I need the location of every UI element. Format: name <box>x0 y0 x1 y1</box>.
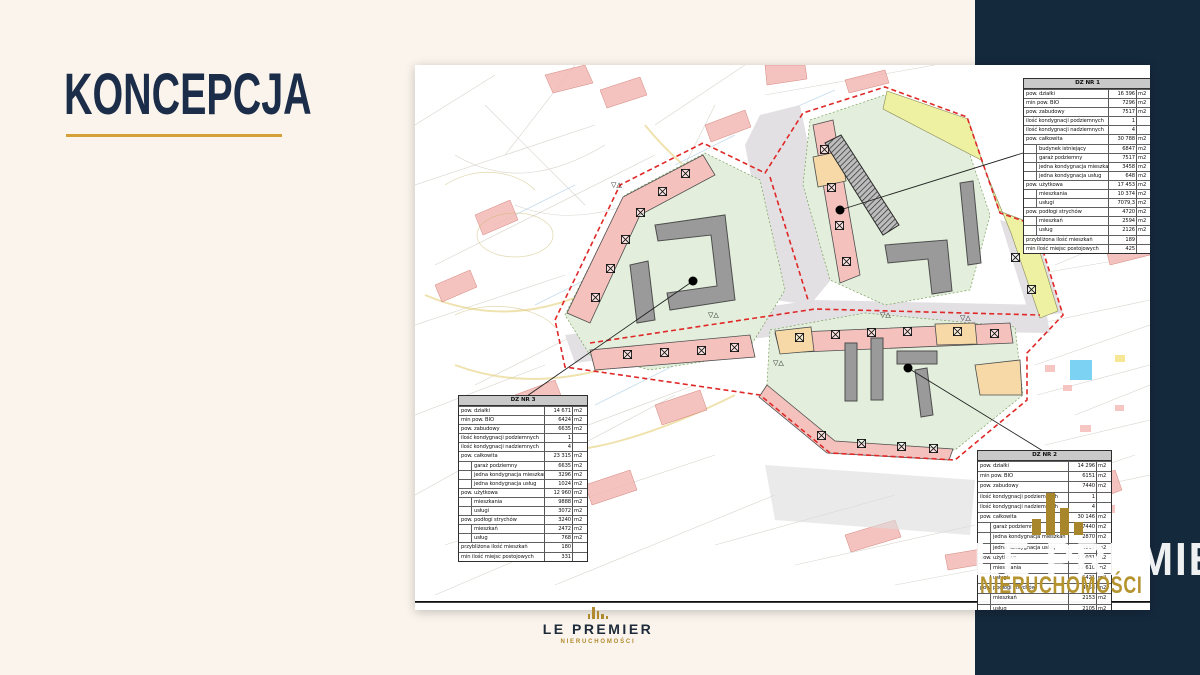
row-value: 6635 <box>544 462 572 470</box>
row-value: 1 <box>1068 493 1096 502</box>
table-row: jedna kondygnacja usług1024m2 <box>459 479 587 488</box>
row-label: usługi <box>991 574 1068 583</box>
water-feature <box>1070 360 1092 380</box>
row-unit: m2 <box>572 525 587 533</box>
table-row: pow. podłogi strychów3240m2 <box>459 515 587 524</box>
row-label: przybliżona ilość mieszkań <box>1024 236 1108 244</box>
svg-text:▽△: ▽△ <box>960 314 971 322</box>
row-unit: m2 <box>572 498 587 506</box>
row-unit: m2 <box>1136 226 1150 234</box>
svg-text:▽△: ▽△ <box>773 359 784 367</box>
row-value: 9888 <box>544 498 572 506</box>
table-row: budynek istniejący6847m2 <box>1024 144 1150 153</box>
row-indent <box>459 498 472 506</box>
table-row: przybliżona ilość mieszkań180 <box>459 542 587 551</box>
table-row: pow. całkowita23 315m2 <box>459 451 587 460</box>
row-unit: m2 <box>1136 208 1150 216</box>
row-unit: m2 <box>1096 462 1111 471</box>
row-value: 12 960 <box>544 489 572 497</box>
table-row: min ilość miejsc postojowych425 <box>1024 244 1150 253</box>
row-value: 7296 <box>1108 99 1136 107</box>
table-dz-nr-3: DZ NR 3pow. działki14 671m2min pow. BIO6… <box>458 395 588 562</box>
row-indent <box>1024 199 1037 207</box>
row-unit: m2 <box>1136 90 1150 98</box>
row-indent <box>1024 217 1037 225</box>
row-indent <box>1024 172 1037 180</box>
row-value: 7517 <box>1108 154 1136 162</box>
row-unit <box>572 553 587 561</box>
row-label: pow. zabudowy <box>978 482 1068 491</box>
row-label: usługi <box>1037 199 1108 207</box>
row-unit: m2 <box>1136 199 1150 207</box>
row-unit: m2 <box>572 480 587 488</box>
row-label: pow. działki <box>978 462 1068 471</box>
row-indent <box>1024 226 1037 234</box>
row-label: pow. podłogi strychów <box>459 516 544 524</box>
table-row: jedna kondygnacja usług2807m2 <box>978 543 1111 553</box>
table-row: ilość kondygnacji podziemnych1 <box>459 433 587 442</box>
row-unit: m2 <box>1136 145 1150 153</box>
row-value: 14 296 <box>1068 462 1096 471</box>
bar-columns-icon <box>498 606 698 619</box>
table-row: ilość kondygnacji nadziemnych4 <box>1024 125 1150 134</box>
row-indent <box>1024 163 1037 171</box>
table-row: pow. całkowita30 788m2 <box>1024 134 1150 143</box>
row-unit: m2 <box>1096 523 1111 532</box>
row-value: 331 <box>544 553 572 561</box>
table-row: usługi3072m2 <box>459 506 587 515</box>
row-label: mieszkania <box>472 498 544 506</box>
row-label: pow. działki <box>1024 90 1108 98</box>
table-row: jedna kondygnacja mieszkań3296m2 <box>459 470 587 479</box>
row-indent <box>459 480 472 488</box>
row-unit: m2 <box>1136 217 1150 225</box>
row-label: przybliżona ilość mieszkań <box>459 543 544 551</box>
row-indent <box>1024 190 1037 198</box>
row-value: 4 <box>1068 503 1096 512</box>
table-title: DZ NR 3 <box>459 396 587 406</box>
row-unit <box>572 543 587 551</box>
table-row: jedna kondygnacja mieszkań3458m2 <box>1024 162 1150 171</box>
row-label: pow. całkowita <box>978 513 1068 522</box>
logo-name: LE PREMIER <box>498 621 698 637</box>
row-value: 6847 <box>1108 145 1136 153</box>
row-unit: m2 <box>1096 605 1111 610</box>
row-unit: m2 <box>1096 533 1111 542</box>
row-value: 7517 <box>1108 108 1136 116</box>
row-label: jedna kondygnacja mieszkań <box>991 533 1068 542</box>
row-value: 17 453 <box>1108 181 1136 189</box>
row-label: min ilość miejsc postojowych <box>459 553 544 561</box>
row-value: 16 396 <box>1108 90 1136 98</box>
row-value: 2105 <box>1068 605 1096 610</box>
row-unit: m2 <box>572 425 587 433</box>
row-label: mieszkań <box>472 525 544 533</box>
row-value: 4 <box>1108 126 1136 134</box>
row-label: budynek istniejący <box>1037 145 1108 153</box>
table-row: min pow. BIO6151m2 <box>978 471 1111 481</box>
row-label: usług <box>472 534 544 542</box>
table-row: pow. działki14 671m2 <box>459 406 587 415</box>
row-label: jedna kondygnacja usług <box>991 544 1068 553</box>
row-unit: m2 <box>1136 181 1150 189</box>
row-label: pow. użytkowa <box>1024 181 1108 189</box>
row-value: 648 <box>1108 172 1136 180</box>
table-row: jedna kondygnacja usług648m2 <box>1024 171 1150 180</box>
table-row: min pow. BIO6424m2 <box>459 415 587 424</box>
row-label: pow. użytkowa <box>459 489 544 497</box>
table-row: mieszkań2472m2 <box>459 524 587 533</box>
row-label: jedna kondygnacja mieszkań <box>472 471 544 479</box>
row-unit: m2 <box>572 489 587 497</box>
row-value: 180 <box>544 543 572 551</box>
table-row: mieszkań2594m2 <box>1024 216 1150 225</box>
row-label: pow. użytkowa <box>978 554 1068 563</box>
row-value: 11 610 <box>1068 564 1096 573</box>
row-indent <box>978 544 991 553</box>
row-value: 2472 <box>544 525 572 533</box>
row-value: 7079,3 <box>1108 199 1136 207</box>
row-value: 7440 <box>1068 482 1096 491</box>
row-unit: m2 <box>572 462 587 470</box>
row-value: 1024 <box>544 480 572 488</box>
table-row: jedna kondygnacja mieszkań2870m2 <box>978 532 1111 542</box>
row-unit <box>572 434 587 442</box>
row-label: pow. podłogi strychów <box>978 584 1068 593</box>
row-unit: m2 <box>1096 472 1111 481</box>
table-row: usługi7079,3m2 <box>1024 198 1150 207</box>
row-label: garaż podziemny <box>472 462 544 470</box>
table-row: mieszkania11 610m2 <box>978 563 1111 573</box>
table-row: pow. zabudowy7517m2 <box>1024 107 1150 116</box>
table-row: pow. działki14 296m2 <box>978 461 1111 471</box>
row-unit: m2 <box>572 471 587 479</box>
parcel-dot-dz2 <box>904 364 913 373</box>
row-unit: m2 <box>1136 108 1150 116</box>
row-unit: m2 <box>1136 172 1150 180</box>
row-label: jedna kondygnacja usług <box>472 480 544 488</box>
row-value: 2153 <box>1068 594 1096 603</box>
row-unit: m2 <box>1136 135 1150 143</box>
row-value: 4 <box>544 443 572 451</box>
row-value: 768 <box>544 534 572 542</box>
row-value: 14 671 <box>544 407 572 415</box>
row-label: ilość kondygnacji podziemnych <box>1024 117 1108 125</box>
row-indent <box>459 525 472 533</box>
row-indent <box>978 574 991 583</box>
row-unit: m2 <box>1096 564 1111 573</box>
row-label: jedna kondygnacja usług <box>1037 172 1108 180</box>
row-indent <box>459 471 472 479</box>
table-dz-nr-2: DZ NR 2pow. działki14 296m2min pow. BIO6… <box>977 450 1112 610</box>
row-value: 2807 <box>1068 544 1096 553</box>
table-row: usług2105m2 <box>978 604 1111 610</box>
row-unit: m2 <box>1096 544 1111 553</box>
row-value: 425 <box>1108 245 1136 253</box>
table-row: min ilość miejsc postojowych331 <box>459 552 587 561</box>
row-unit: m2 <box>1136 190 1150 198</box>
row-label: pow. zabudowy <box>1024 108 1108 116</box>
row-value: 2870 <box>1068 533 1096 542</box>
row-label: garaż podziemny <box>1037 154 1108 162</box>
row-label: min pow. BIO <box>459 416 544 424</box>
row-label: ilość kondygnacji podziemnych <box>978 493 1068 502</box>
table-row: ilość kondygnacji podziemnych1 <box>1024 116 1150 125</box>
row-label: jedna kondygnacja mieszkań <box>1037 163 1108 171</box>
row-unit: m2 <box>1096 513 1111 522</box>
row-unit: m2 <box>1096 594 1111 603</box>
row-label: min ilość miejsc postojowych <box>1024 245 1108 253</box>
row-label: ilość kondygnacji nadziemnych <box>978 503 1068 512</box>
row-value: 1 <box>544 434 572 442</box>
row-label: pow. całkowita <box>459 452 544 460</box>
row-value: 30 146 <box>1068 513 1096 522</box>
row-unit: m2 <box>1096 584 1111 593</box>
row-indent <box>978 594 991 603</box>
row-value: 3240 <box>544 516 572 524</box>
row-unit <box>1096 503 1111 512</box>
row-indent <box>459 534 472 542</box>
row-indent <box>1024 145 1037 153</box>
row-unit <box>572 443 587 451</box>
svg-text:▽△: ▽△ <box>708 311 719 319</box>
logo-subtitle: NIERUCHOMOŚCI <box>498 639 698 645</box>
row-label: pow. działki <box>459 407 544 415</box>
row-value: 3458 <box>1108 163 1136 171</box>
row-value: 3296 <box>544 471 572 479</box>
row-unit: m2 <box>1096 554 1111 563</box>
row-label: garaż podziemny <box>991 523 1068 532</box>
row-label: ilość kondygnacji nadziemnych <box>1024 126 1108 134</box>
row-label: min pow. BIO <box>1024 99 1108 107</box>
row-indent <box>978 564 991 573</box>
table-row: pow. działki16 396m2 <box>1024 89 1150 98</box>
row-label: mieszkań <box>1037 217 1108 225</box>
table-row: przybliżona ilość mieszkań189 <box>1024 235 1150 244</box>
row-unit <box>1136 117 1150 125</box>
table-title: DZ NR 2 <box>978 451 1111 461</box>
table-row: pow. podłogi strychów4720m2 <box>1024 207 1150 216</box>
row-indent <box>978 523 991 532</box>
table-row: ilość kondygnacji nadziemnych4 <box>459 442 587 451</box>
row-value: 17 031 <box>1068 554 1096 563</box>
row-label: usług <box>991 605 1068 610</box>
basemap-khaki-outlines <box>445 172 555 327</box>
table-row: garaż podziemny7517m2 <box>1024 153 1150 162</box>
slide: KONCEPCJA <box>0 0 1200 675</box>
row-value: 5421 <box>1068 574 1096 583</box>
svg-text:▽△: ▽△ <box>611 181 622 189</box>
table-row: mieszkania10 374m2 <box>1024 189 1150 198</box>
row-label: pow. podłogi strychów <box>1024 208 1108 216</box>
row-value: 2126 <box>1108 226 1136 234</box>
row-unit: m2 <box>1136 163 1150 171</box>
row-label: pow. całkowita <box>1024 135 1108 143</box>
row-label: min pow. BIO <box>978 472 1068 481</box>
concept-site-plan: ▽△ ▽△ ▽△ ▽△ ▽△ DZ NR 1pow. działki16 396… <box>415 65 1150 610</box>
table-row: usług768m2 <box>459 533 587 542</box>
row-label: mieszkań <box>991 594 1068 603</box>
row-unit: m2 <box>572 407 587 415</box>
page-title: KONCEPCJA <box>64 66 312 124</box>
row-indent <box>978 533 991 542</box>
table-row: garaż podziemny6635m2 <box>459 461 587 470</box>
row-unit <box>1136 126 1150 134</box>
row-unit <box>1096 493 1111 502</box>
row-label: ilość kondygnacji podziemnych <box>459 434 544 442</box>
table-dz-nr-1: DZ NR 1pow. działki16 396m2min pow. BIO7… <box>1023 78 1150 254</box>
row-unit: m2 <box>572 516 587 524</box>
row-indent <box>459 462 472 470</box>
row-value: 2594 <box>1108 217 1136 225</box>
table-row: usług2126m2 <box>1024 225 1150 234</box>
row-label: mieszkania <box>991 564 1068 573</box>
title-underline <box>66 134 282 137</box>
table-row: garaż podziemny7440m2 <box>978 522 1111 532</box>
table-row: pow. zabudowy6635m2 <box>459 424 587 433</box>
row-unit: m2 <box>1096 574 1111 583</box>
row-value: 3072 <box>544 507 572 515</box>
row-unit <box>1136 245 1150 253</box>
row-unit: m2 <box>572 507 587 515</box>
row-indent <box>978 605 991 610</box>
row-unit: m2 <box>1096 482 1111 491</box>
row-value: 23 315 <box>544 452 572 460</box>
table-row: mieszkań2153m2 <box>978 593 1111 603</box>
footer-logo: LE PREMIER NIERUCHOMOŚCI <box>498 606 698 645</box>
row-label: ilość kondygnacji nadziemnych <box>459 443 544 451</box>
table-row: pow. użytkowa17 453m2 <box>1024 180 1150 189</box>
row-value: 189 <box>1108 236 1136 244</box>
row-unit: m2 <box>1136 99 1150 107</box>
parking-area <box>765 465 975 535</box>
row-indent <box>1024 154 1037 162</box>
row-label: pow. zabudowy <box>459 425 544 433</box>
row-label: mieszkania <box>1037 190 1108 198</box>
table-row: pow. podłogi strychów4258m2 <box>978 583 1111 593</box>
row-value: 4720 <box>1108 208 1136 216</box>
row-label: usługi <box>472 507 544 515</box>
table-row: pow. zabudowy7440m2 <box>978 481 1111 491</box>
row-indent <box>459 507 472 515</box>
row-label: usług <box>1037 226 1108 234</box>
table-row: min pow. BIO7296m2 <box>1024 98 1150 107</box>
table-row: mieszkania9888m2 <box>459 497 587 506</box>
row-unit: m2 <box>1136 154 1150 162</box>
parcel-dot-dz3 <box>689 277 698 286</box>
row-value: 1 <box>1108 117 1136 125</box>
row-value: 30 788 <box>1108 135 1136 143</box>
table-row: pow. użytkowa12 960m2 <box>459 488 587 497</box>
table-title: DZ NR 1 <box>1024 79 1150 89</box>
table-row: ilość kondygnacji podziemnych1 <box>978 492 1111 502</box>
row-unit: m2 <box>572 534 587 542</box>
row-value: 6635 <box>544 425 572 433</box>
row-value: 4258 <box>1068 584 1096 593</box>
row-unit: m2 <box>572 452 587 460</box>
row-value: 10 374 <box>1108 190 1136 198</box>
table-row: pow. użytkowa17 031m2 <box>978 553 1111 563</box>
table-row: ilość kondygnacji nadziemnych4 <box>978 502 1111 512</box>
row-value: 6151 <box>1068 472 1096 481</box>
row-value: 6424 <box>544 416 572 424</box>
row-unit <box>1136 236 1150 244</box>
svg-text:▽△: ▽△ <box>880 311 891 319</box>
row-unit: m2 <box>572 416 587 424</box>
table-row: usługi5421m2 <box>978 573 1111 583</box>
parcel-dot-dz1 <box>836 206 845 215</box>
table-row: pow. całkowita30 146m2 <box>978 512 1111 522</box>
row-value: 7440 <box>1068 523 1096 532</box>
